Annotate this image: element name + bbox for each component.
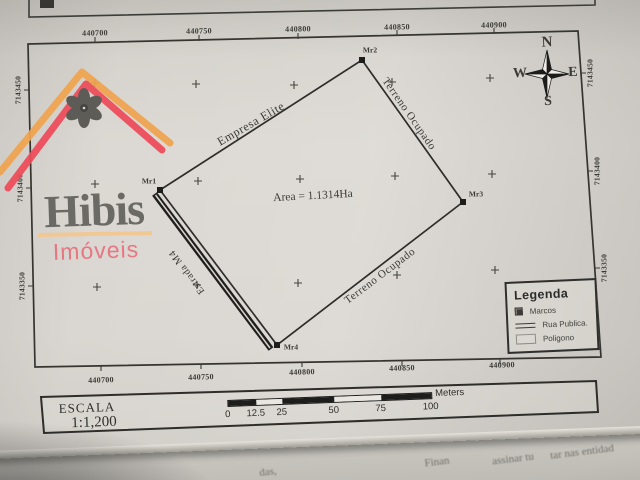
- marker-label: Mr3: [469, 190, 483, 199]
- public-road-icon: [515, 322, 535, 328]
- brand-name: Hibis: [43, 182, 145, 238]
- grid-x-label-top: 440700: [82, 28, 108, 37]
- marker-label: Mr4: [284, 343, 298, 352]
- legend-item-label: Marcos: [530, 305, 557, 315]
- grid-y-label-right: 7143400: [593, 157, 602, 185]
- parcel-polygon: [160, 60, 463, 345]
- compass-north-label: N: [541, 34, 552, 51]
- grid-x-label-bottom: 440700: [88, 375, 114, 385]
- legend-item-rua-publica: Rua Publica.: [515, 317, 589, 330]
- grid-x-label-top: 440850: [384, 22, 410, 31]
- legend-title: Legenda: [514, 285, 589, 302]
- grid-x-label-bottom: 440850: [389, 363, 415, 373]
- scale-tick-label: 100: [423, 401, 439, 413]
- survey-map-photo: das, Finan assinar tu tar nas entidad: [0, 0, 640, 480]
- brand-tagline: Imóveis: [52, 236, 139, 266]
- grid-x-label-top: 440750: [186, 26, 212, 35]
- grid-x-label-top: 440900: [481, 20, 507, 29]
- scale-tick-label: 25: [276, 407, 287, 418]
- scale-tick-label: 50: [328, 405, 339, 416]
- grid-x-label-bottom: 440750: [188, 372, 214, 382]
- legend-item-label: Rua Publica.: [542, 318, 588, 329]
- marker-label: Mr2: [363, 46, 377, 55]
- upper-frame-block: [40, 0, 54, 8]
- compass-west-label: W: [513, 66, 528, 82]
- compass-east-label: E: [568, 65, 578, 81]
- compass-rose-icon: [525, 50, 569, 98]
- scale-tick-label: 75: [375, 403, 386, 414]
- polygon-icon: [516, 334, 536, 345]
- compass-south-label: S: [544, 94, 552, 110]
- survey-marker-icon: [515, 307, 523, 315]
- upper-frame-remnant: [29, 0, 595, 17]
- scale-unit-label: Meters: [435, 387, 464, 399]
- scale-tick-label: 0: [225, 409, 231, 420]
- legend-item-poligono: Poligono: [516, 331, 590, 344]
- hibis-imoveis-logo: Hibis Imóveis: [0, 58, 200, 218]
- survey-marker-squares: [157, 57, 466, 348]
- legend-box: Legenda Marcos Rua Publica. Poligono: [504, 278, 599, 354]
- grid-x-label-bottom: 440900: [489, 360, 515, 370]
- legend-item-label: Poligono: [543, 333, 575, 343]
- corner-shadow: [0, 420, 230, 480]
- scale-tick-label: 12.5: [246, 408, 265, 420]
- grid-x-label-bottom: 440800: [289, 367, 315, 377]
- grid-y-label-left: 7143350: [18, 272, 27, 300]
- grid-y-label-right: 7143350: [600, 254, 609, 282]
- legend-item-marcos: Marcos: [515, 303, 589, 316]
- grid-x-label-top: 440800: [285, 24, 311, 33]
- grid-y-label-right: 7143450: [586, 59, 595, 87]
